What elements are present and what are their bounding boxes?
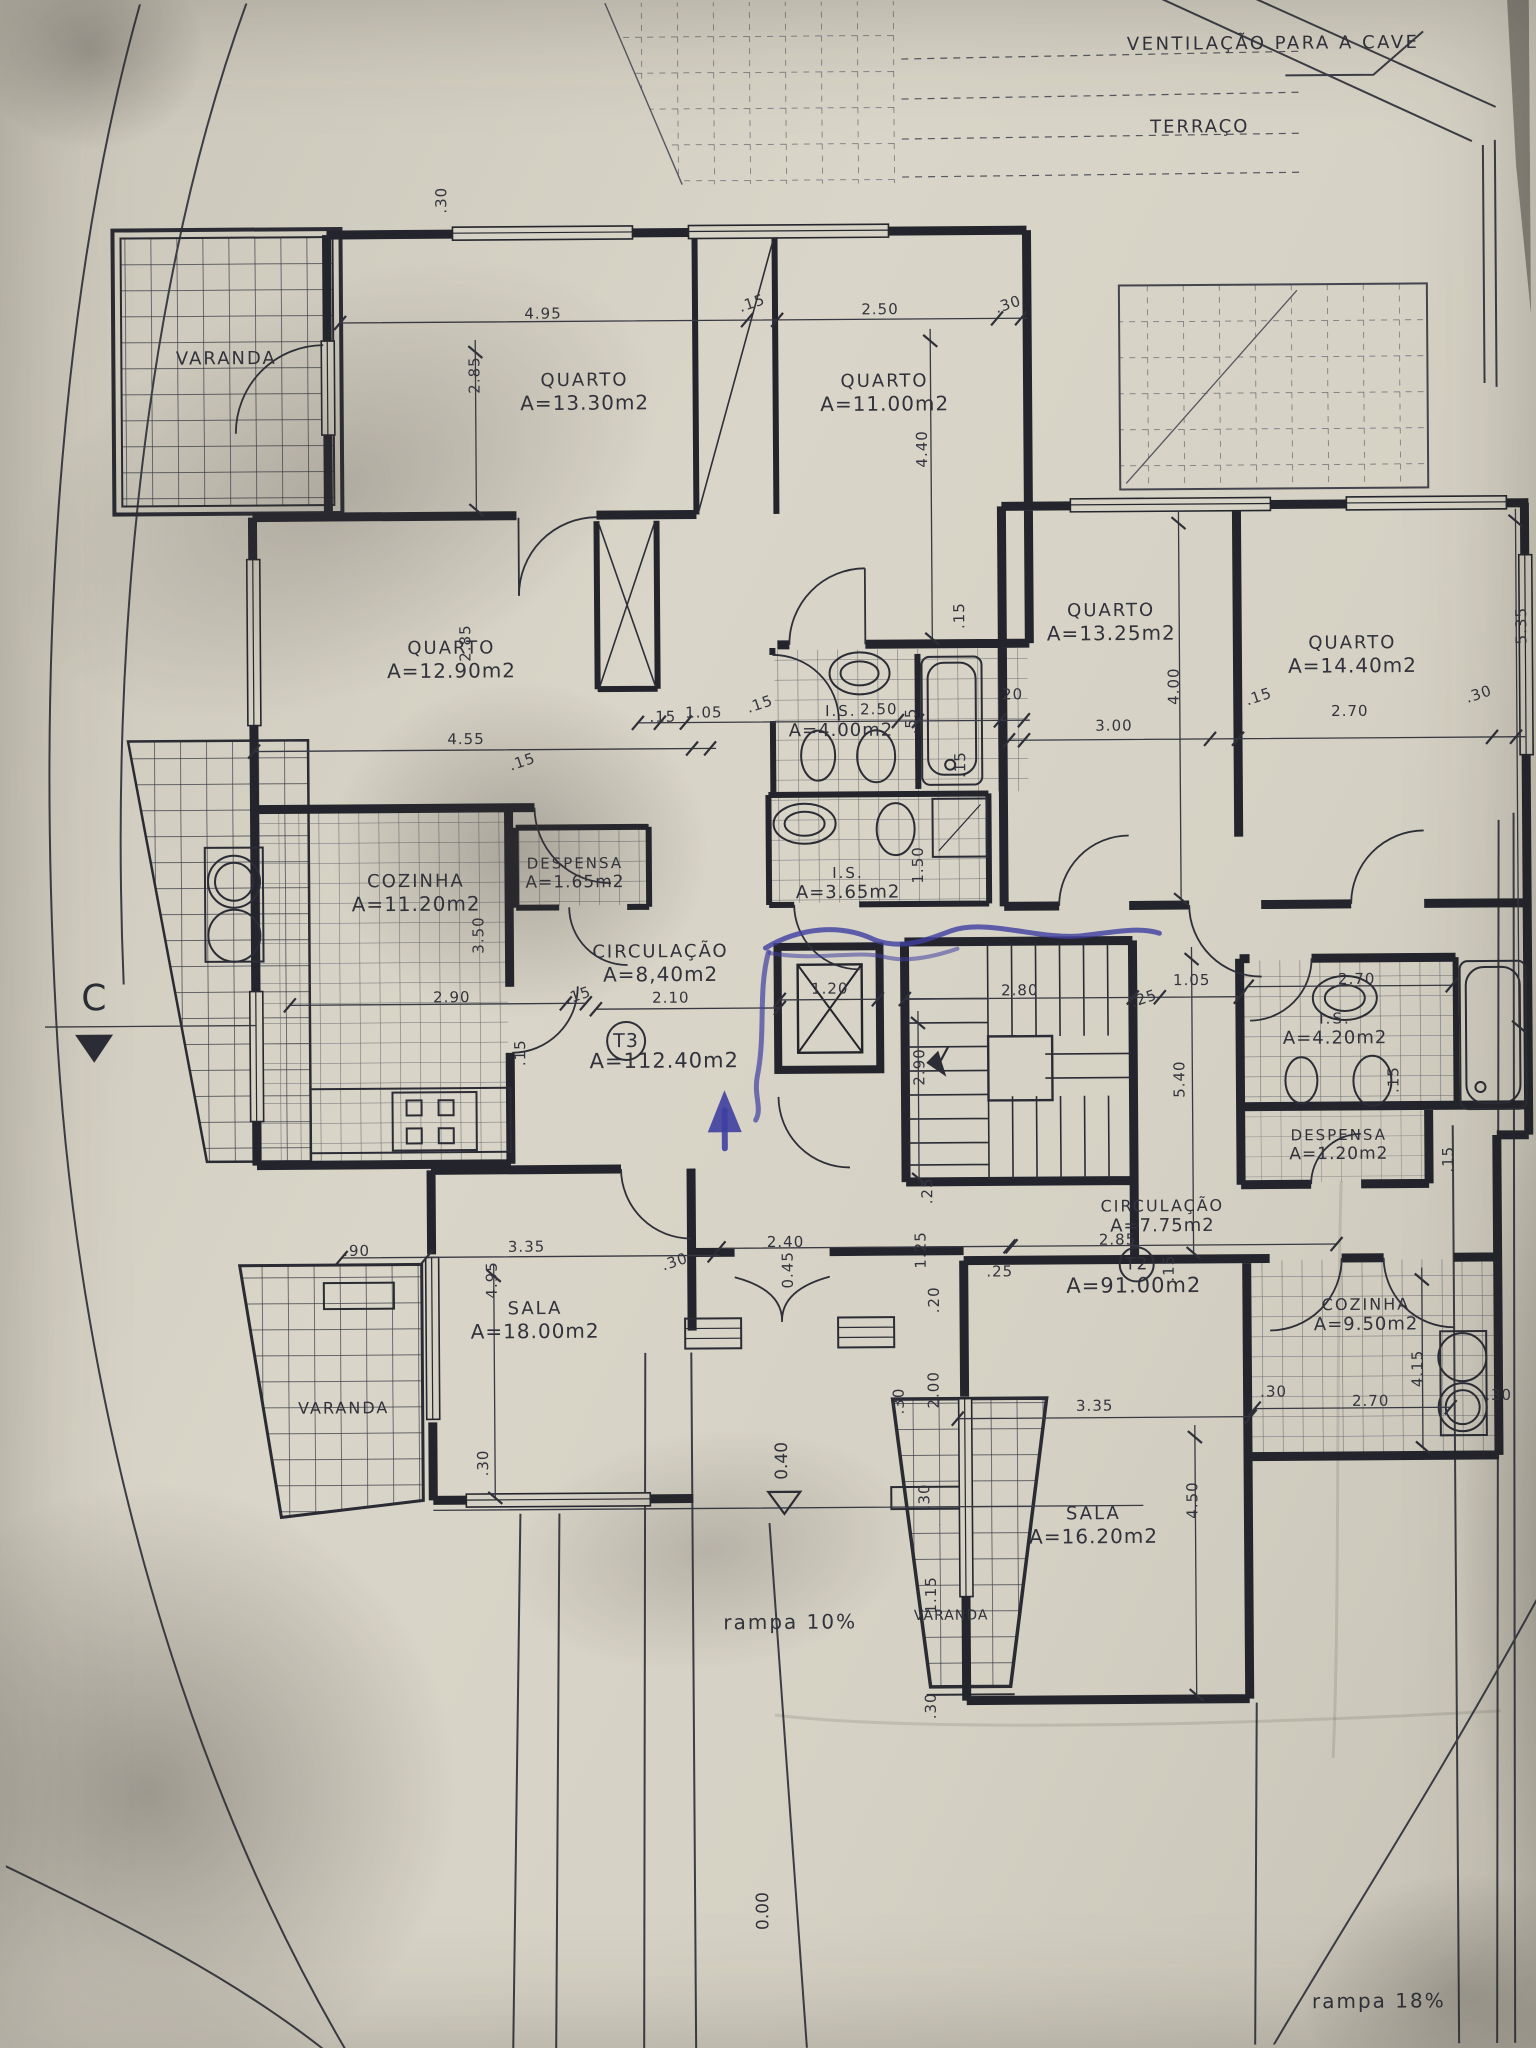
dimension-label: 4.00	[1165, 667, 1183, 705]
dimension-label: .15	[649, 708, 676, 726]
dimension-label: .15	[1439, 1146, 1457, 1173]
room-quarto-1440: QUARTOA=14.40m2	[1288, 632, 1417, 678]
dimension-label: .20	[996, 685, 1023, 703]
dimension-label: 1.25	[911, 1231, 929, 1269]
section-marker-c: C	[81, 978, 106, 1019]
room-quarto-1290: QUARTOA=12.90m2	[387, 637, 516, 683]
dimension-label: 2.90	[433, 988, 471, 1006]
dimension-label: 0.45	[779, 1251, 797, 1289]
dimension-label: 2.10	[652, 989, 690, 1007]
dimension-label: 3.50	[469, 916, 487, 954]
room-is-420: I.S.A=4.20m2	[1283, 1009, 1388, 1049]
room-sala-t3: SALAA=18.00m2	[470, 1298, 599, 1344]
dimension-label: .15	[951, 751, 969, 778]
dimension-label: 2.85	[456, 624, 474, 662]
dimension-label: 4.55	[447, 730, 485, 748]
dimension-label: 1.50	[909, 846, 927, 884]
dimension-label: 1.05	[1173, 971, 1211, 989]
dimension-label: 4.95	[524, 304, 562, 322]
note-terraco: TERRAÇO	[1150, 116, 1250, 138]
dimension-label: .30	[432, 187, 450, 214]
dimension-label: 4.15	[1408, 1350, 1426, 1388]
dimension-label: .25	[918, 1177, 936, 1204]
note-rampa18: rampa 18%	[1312, 1988, 1446, 2013]
dimension-label: 3.35	[508, 1238, 546, 1256]
dimension-label: .55	[902, 708, 920, 735]
dimension-label: 4.50	[1183, 1481, 1201, 1519]
dimension-label: 1.15	[922, 1576, 940, 1614]
dimension-label: .30	[915, 1483, 933, 1510]
elevator	[777, 946, 880, 1070]
dimension-label: 3.00	[1095, 716, 1133, 734]
dimension-label: 4.95	[483, 1261, 501, 1299]
dimension-label: 4.40	[913, 430, 931, 468]
floorplan: VENTILAÇÃO PARA A CAVE TERRAÇO C rampa 1…	[0, 0, 1536, 2048]
dimension-label: 2.50	[860, 700, 898, 718]
dimension-label: 2.85	[465, 356, 483, 394]
room-quarto-1100: QUARTOA=11.00m2	[820, 370, 949, 416]
note-rampa10: rampa 10%	[723, 1609, 857, 1634]
dimension-label: .15	[950, 602, 968, 629]
room-cozinha-t3: COZINHAA=11.20m2	[351, 871, 480, 917]
room-varanda-bottom-left: VARANDA	[298, 1398, 389, 1418]
dimension-label: 2.90	[910, 1048, 928, 1086]
room-circulacao-t3: CIRCULAÇÃOA=8,40m2	[592, 941, 729, 987]
room-despensa-t3: DESPENSAA=1.65m2	[525, 854, 624, 893]
dimension-label: 2.85	[1099, 1230, 1137, 1248]
dimension-label: .30	[1485, 1386, 1512, 1404]
dimension-label: 2.80	[1001, 981, 1039, 999]
stairs	[906, 942, 1132, 1180]
apartment-area-t3: A=112.40m2	[590, 1048, 739, 1073]
dimension-label: .30	[890, 1388, 908, 1415]
note-ventilacao: VENTILAÇÃO PARA A CAVE	[1127, 32, 1420, 55]
dimension-label: 2.70	[1331, 702, 1369, 720]
floorplan-photo: VENTILAÇÃO PARA A CAVE TERRAÇO C rampa 1…	[0, 0, 1536, 2048]
dimension-label: .25	[986, 1262, 1013, 1280]
dimension-label: 2.70	[1352, 1392, 1390, 1410]
dimension-label: .90	[343, 1242, 370, 1260]
dimension-label: .15	[1384, 1066, 1402, 1093]
photo-edge	[1507, 0, 1531, 315]
dimension-label: 5.40	[1170, 1060, 1188, 1098]
level-entry: 0.40	[772, 1442, 792, 1480]
room-quarto-1325: QUARTOA=13.25m2	[1047, 600, 1176, 646]
level-street: 0.00	[753, 1892, 773, 1930]
dimension-label: 5.35	[1512, 607, 1530, 645]
room-quarto-1330: QUARTOA=13.30m2	[520, 369, 649, 415]
dimension-label: 2.00	[924, 1371, 942, 1409]
dimension-label: 3.35	[1076, 1397, 1114, 1415]
room-cozinha-t2: COZINHAA=9.50m2	[1314, 1294, 1419, 1335]
room-despensa-t2: DESPENSAA=1.20m2	[1289, 1126, 1388, 1165]
hatched-terraces	[605, 0, 1428, 493]
dimension-label: 2.70	[1338, 970, 1376, 988]
dimension-label: .30	[1260, 1382, 1287, 1400]
apartment-area-t2: A=91.00m2	[1066, 1273, 1201, 1298]
dimension-label: 2.50	[861, 300, 899, 318]
entrance-steps	[685, 1317, 894, 1348]
dimension-label: .15	[511, 1039, 529, 1066]
dimension-label: .30	[474, 1450, 492, 1477]
dimension-label: .20	[925, 1286, 943, 1313]
room-sala-t2: SALAA=16.20m2	[1029, 1503, 1158, 1549]
dimension-label: 1.05	[685, 703, 723, 721]
dimension-label: .15	[1160, 1255, 1178, 1282]
dimension-label: .30	[922, 1692, 940, 1719]
dimension-label: 1.20	[811, 979, 849, 997]
room-is-365: I.S.A=3.65m2	[796, 864, 901, 904]
dimension-label: 2.40	[767, 1233, 805, 1251]
room-varanda-top-left: VARANDA	[176, 348, 277, 370]
